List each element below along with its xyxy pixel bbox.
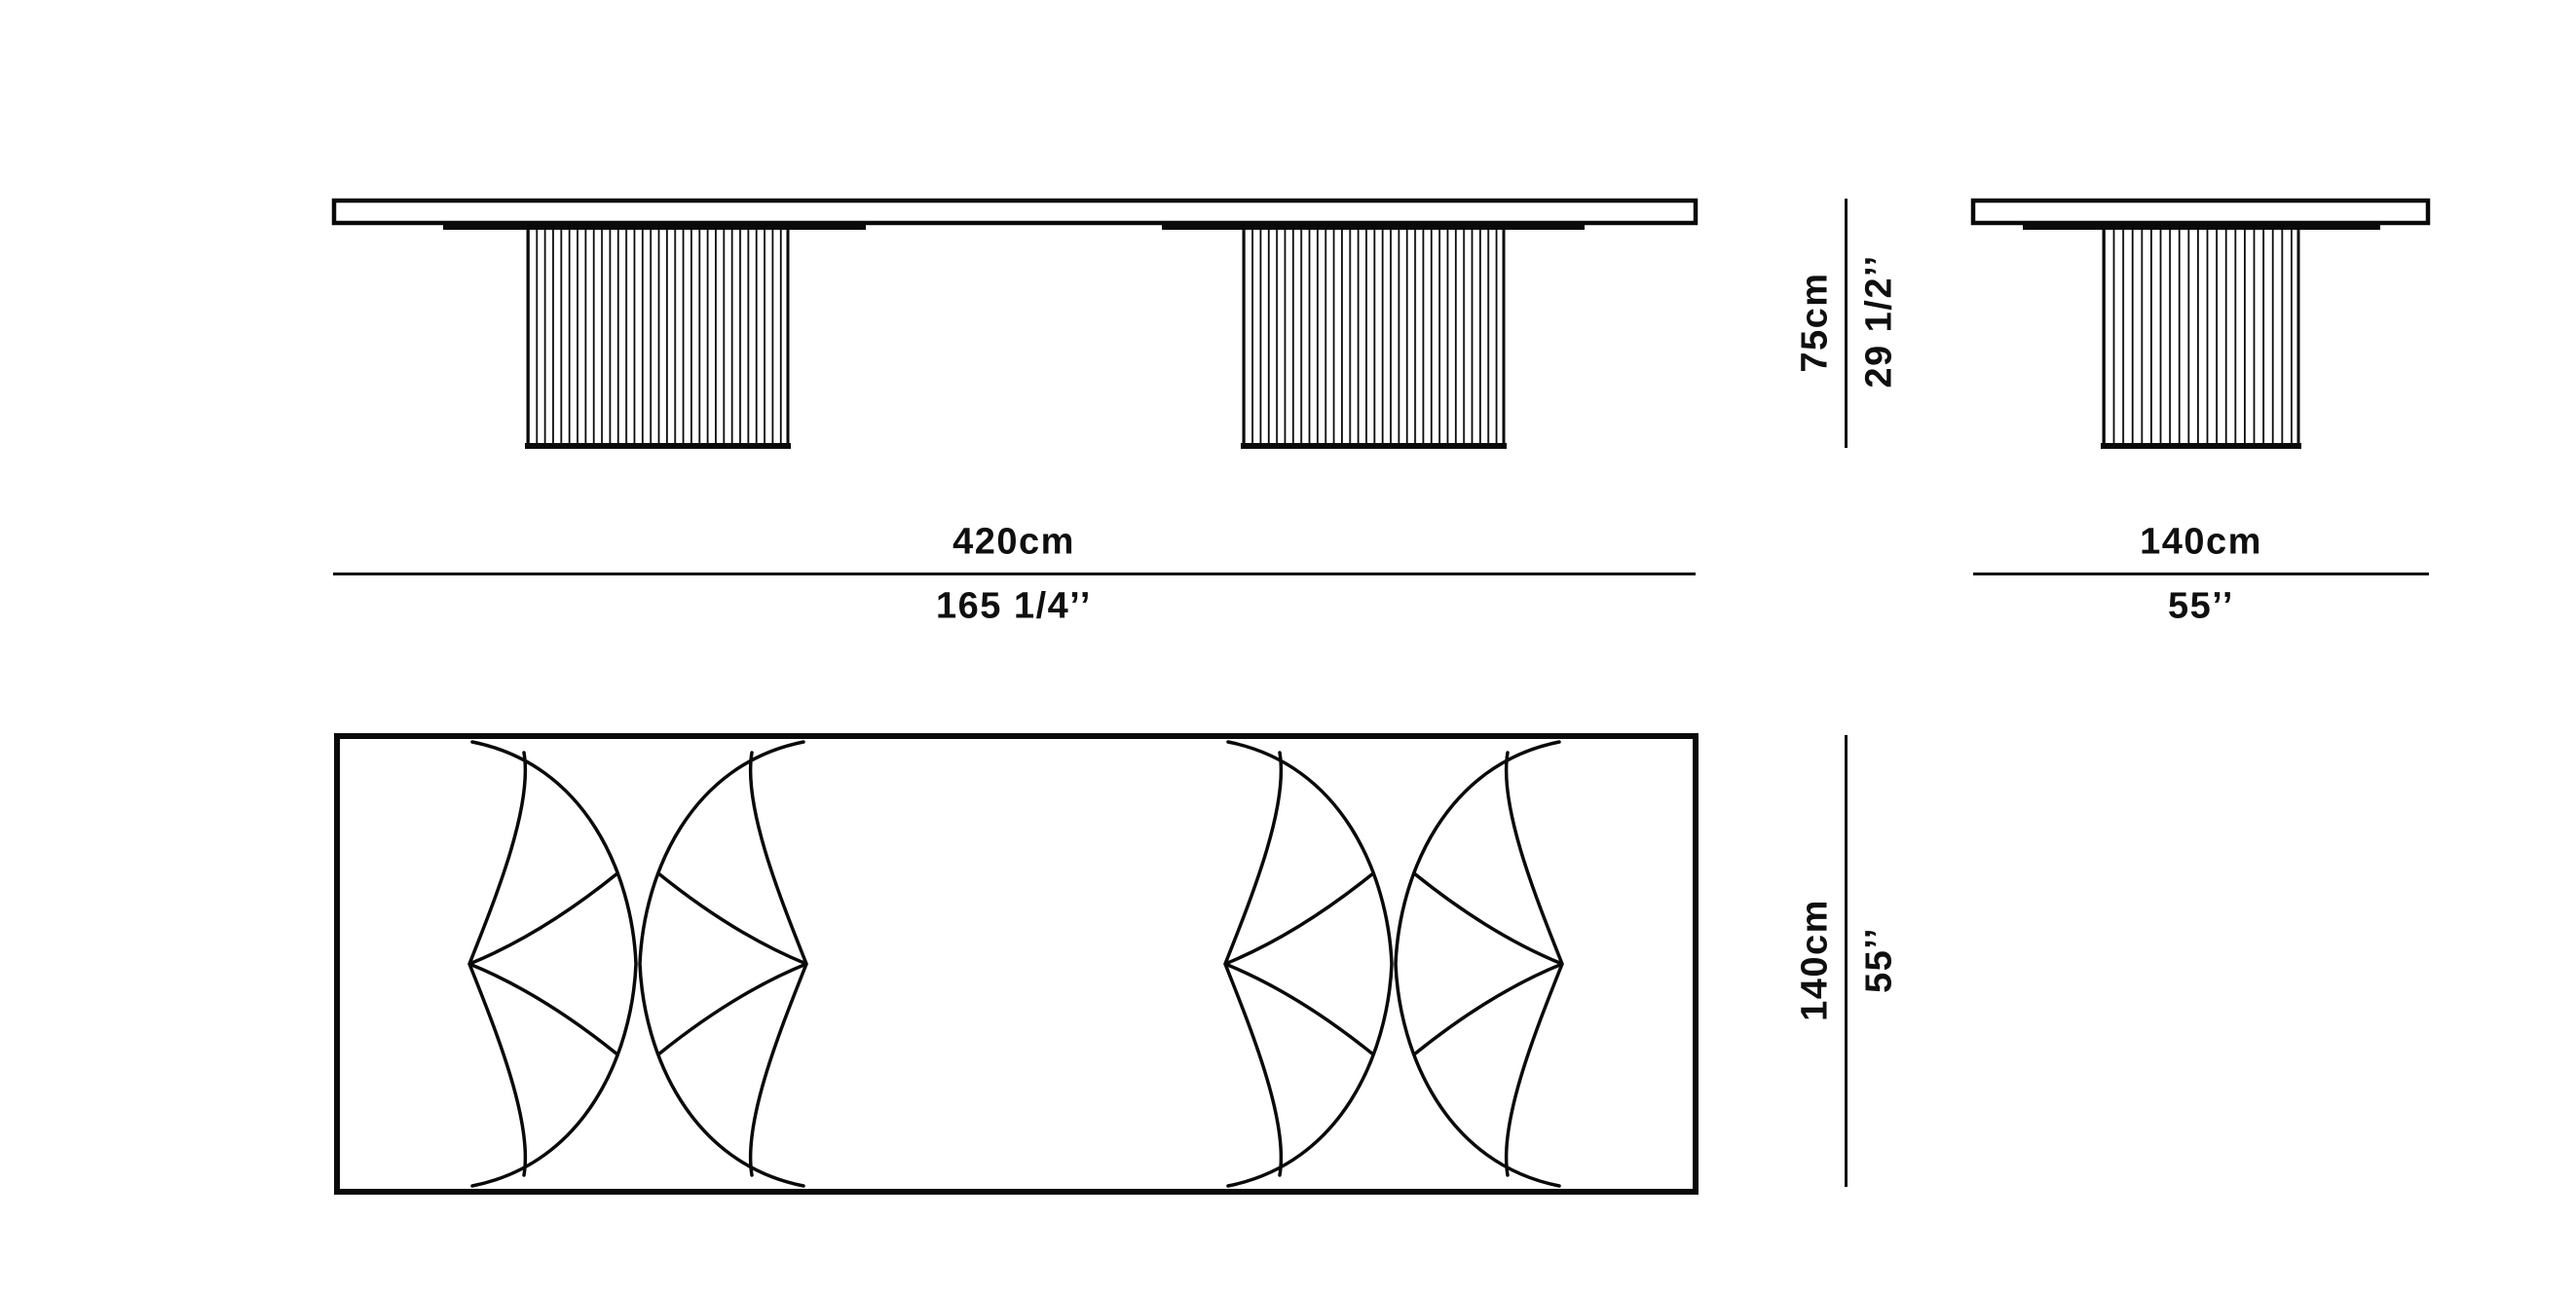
plan-view xyxy=(337,736,1696,1192)
side-pedestal-flutes xyxy=(2104,228,2298,446)
front-left-pedestal xyxy=(525,228,791,446)
dimension-length-imperial: 165 1/4’’ xyxy=(936,586,1092,628)
side-elevation-view xyxy=(1973,201,2428,446)
dimension-height-imperial: 29 1/2’’ xyxy=(1859,254,1901,388)
front-left-pedestal-flutes xyxy=(528,228,788,446)
dimension-depth-metric: 140cm xyxy=(1795,899,1837,1021)
dimension-width-imperial: 55’’ xyxy=(2168,586,2234,628)
dimension-length-line xyxy=(333,573,1696,575)
side-tabletop xyxy=(1973,201,2428,223)
drawing-canvas: 420cm 165 1/4’’ 75cm 29 1/2’’ 140cm 55’’… xyxy=(0,0,2576,1293)
dimension-width-metric: 140cm xyxy=(2140,522,2262,564)
front-elevation-view xyxy=(334,201,1696,446)
plan-tabletop-outline xyxy=(337,736,1696,1192)
dimension-height-metric: 75cm xyxy=(1795,272,1837,372)
dimension-length-metric: 420cm xyxy=(952,522,1075,564)
dimension-width-line xyxy=(1973,573,2429,575)
dimension-depth-imperial: 55’’ xyxy=(1859,927,1901,993)
technical-drawing xyxy=(0,0,2576,1293)
dimension-depth-line xyxy=(1845,735,1848,1187)
side-pedestal xyxy=(2101,228,2301,446)
dimension-height-line xyxy=(1845,199,1848,448)
front-right-pedestal xyxy=(1241,228,1507,446)
front-right-pedestal-flutes xyxy=(1244,228,1504,446)
front-tabletop xyxy=(334,201,1696,223)
